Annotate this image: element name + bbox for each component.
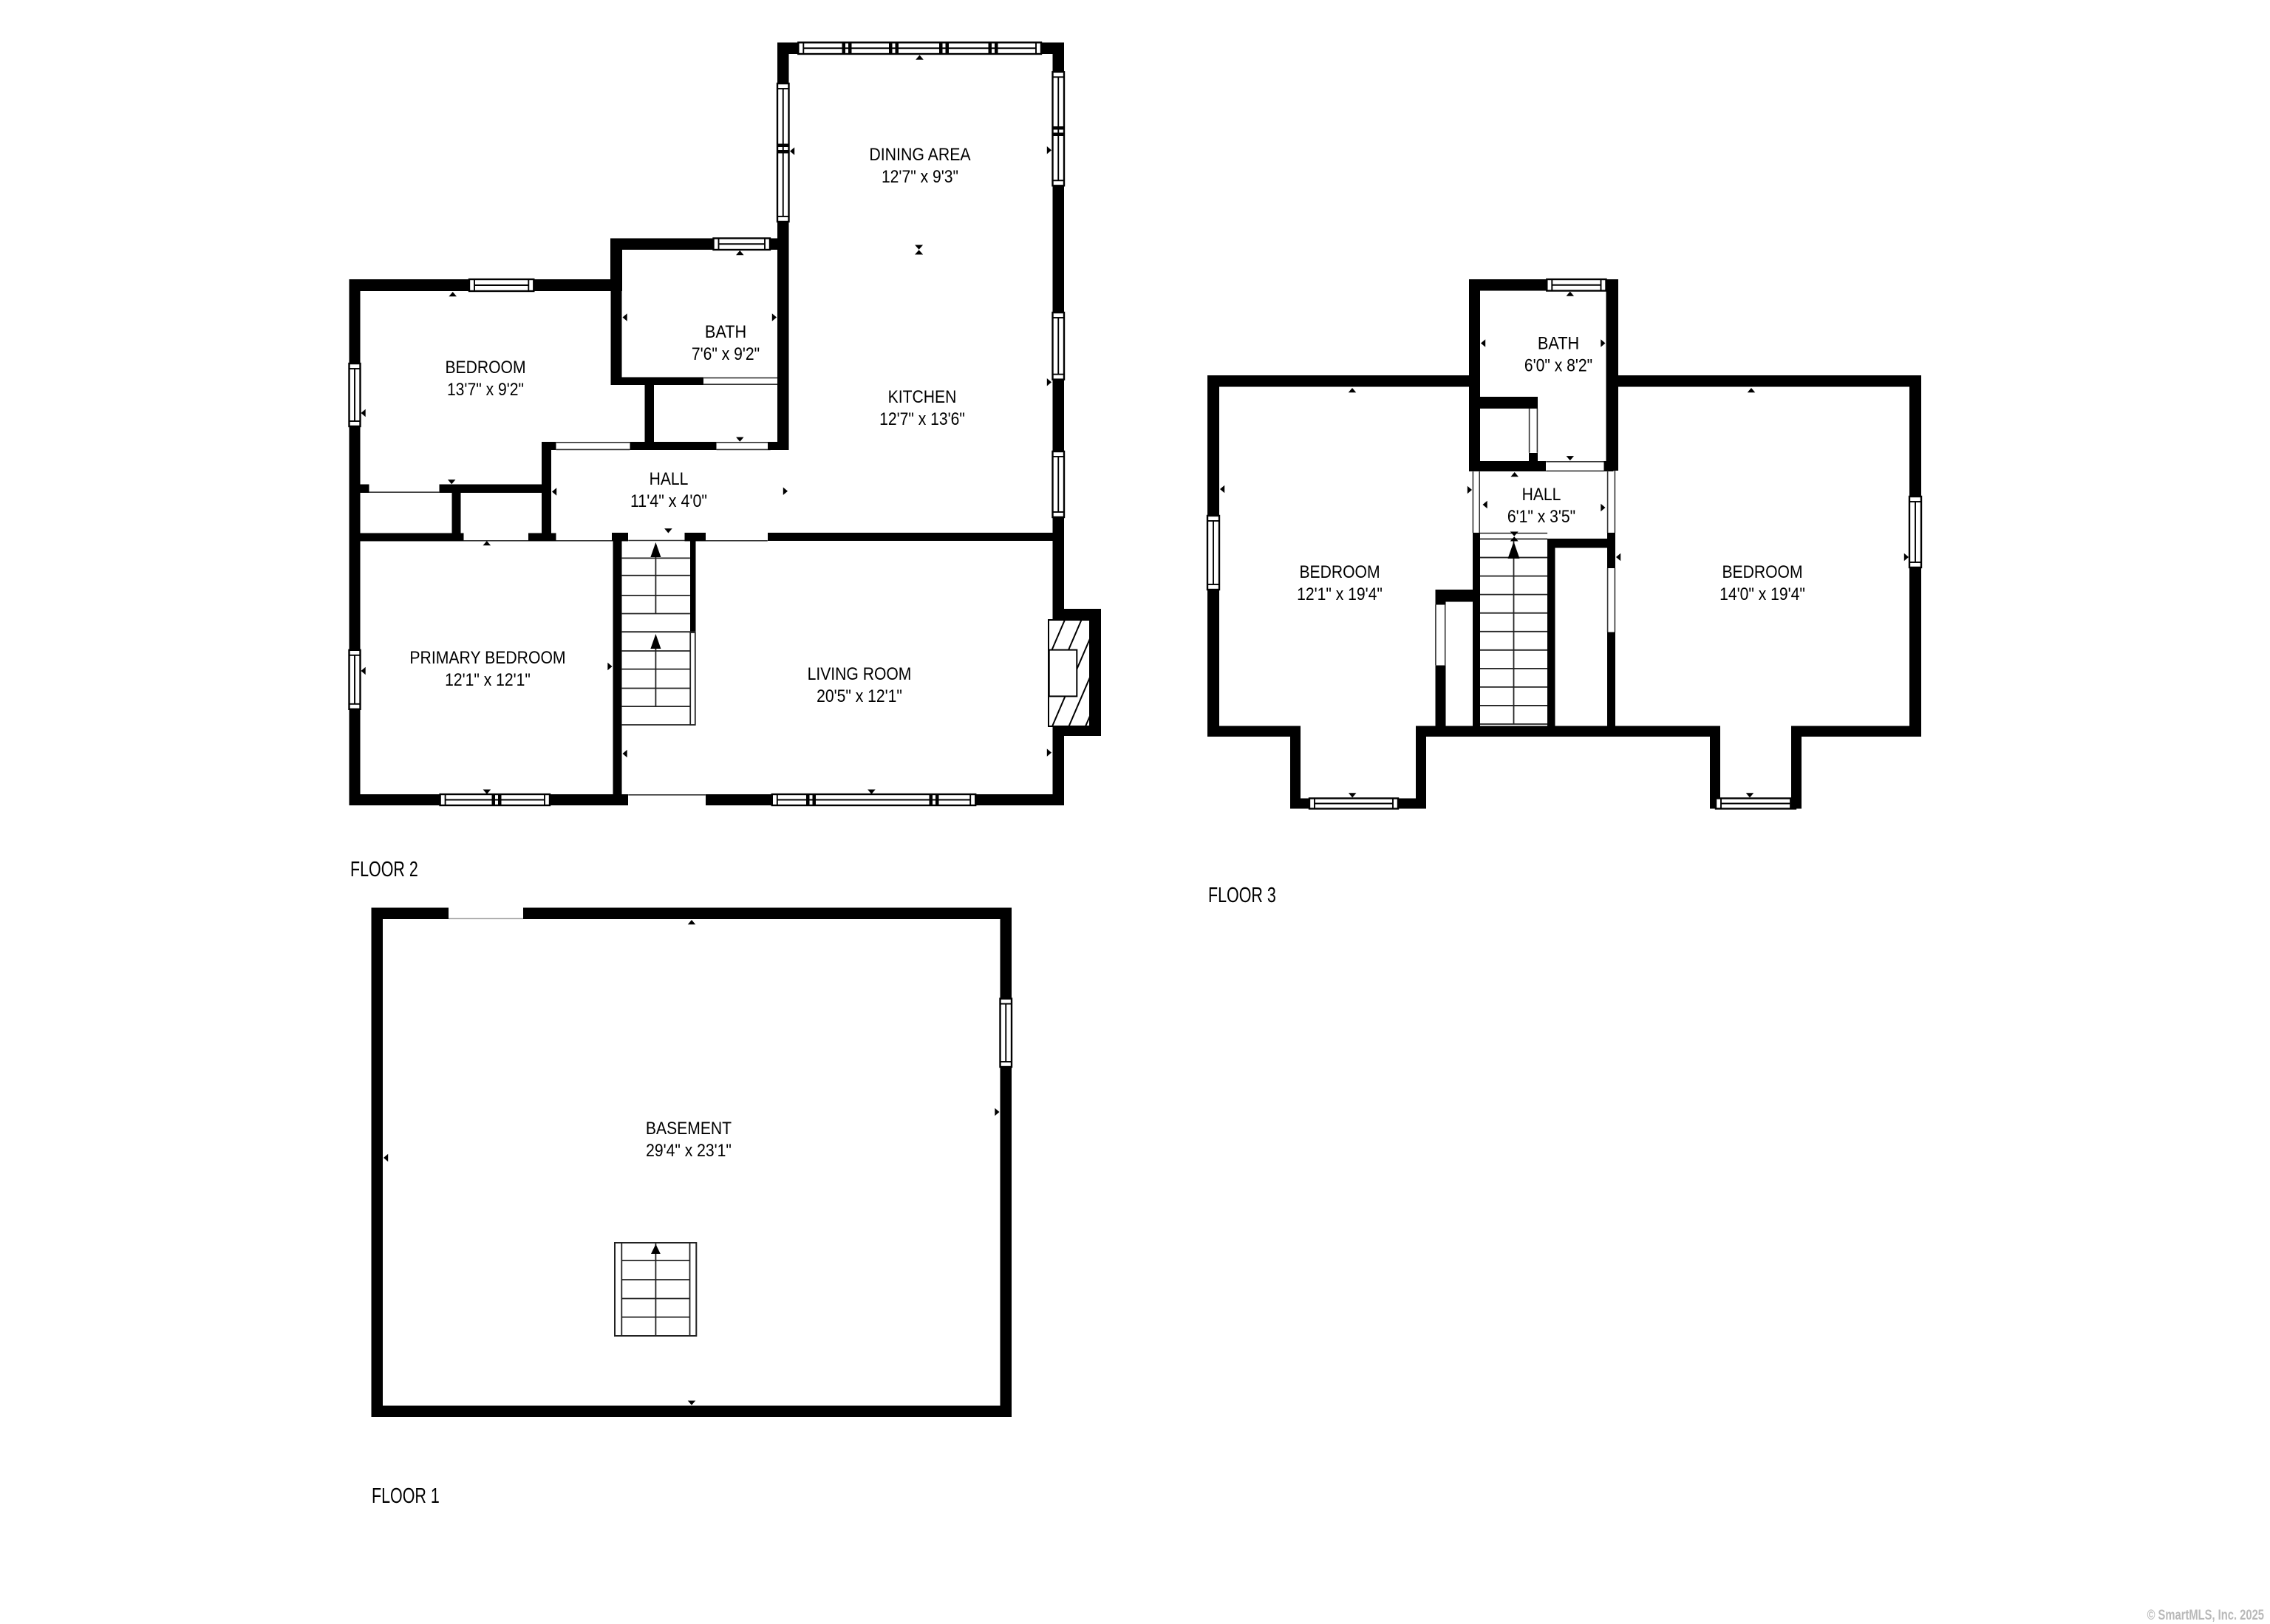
svg-text:12'1" x 12'1": 12'1" x 12'1" [445, 670, 531, 690]
svg-text:14'0" x 19'4": 14'0" x 19'4" [1719, 584, 1805, 604]
svg-text:11'4" x 4'0": 11'4" x 4'0" [630, 491, 707, 511]
svg-text:BASEMENT: BASEMENT [646, 1119, 732, 1139]
svg-text:7'6" x 9'2": 7'6" x 9'2" [692, 344, 760, 364]
svg-text:6'1" x 3'5": 6'1" x 3'5" [1507, 507, 1575, 527]
svg-text:BEDROOM: BEDROOM [1299, 562, 1380, 582]
svg-text:12'1" x 19'4": 12'1" x 19'4" [1297, 584, 1383, 604]
svg-text:KITCHEN: KITCHEN [888, 387, 957, 407]
svg-text:© SmartMLS, Inc. 2025: © SmartMLS, Inc. 2025 [2147, 1608, 2265, 1623]
svg-text:HALL: HALL [1522, 485, 1561, 505]
svg-text:13'7" x 9'2": 13'7" x 9'2" [447, 380, 524, 400]
svg-text:FLOOR 2: FLOOR 2 [350, 858, 418, 881]
svg-text:12'7" x 9'3": 12'7" x 9'3" [882, 167, 958, 187]
svg-text:BEDROOM: BEDROOM [445, 358, 525, 378]
svg-text:BATH: BATH [705, 322, 746, 342]
svg-text:DINING AREA: DINING AREA [869, 145, 970, 165]
svg-text:PRIMARY BEDROOM: PRIMARY BEDROOM [409, 648, 565, 668]
svg-text:29'4" x 23'1": 29'4" x 23'1" [646, 1141, 732, 1161]
svg-text:LIVING ROOM: LIVING ROOM [808, 664, 912, 684]
svg-text:FLOOR 1: FLOOR 1 [372, 1484, 440, 1508]
svg-text:FLOOR 3: FLOOR 3 [1208, 884, 1276, 907]
svg-text:BEDROOM: BEDROOM [1722, 562, 1802, 582]
svg-text:HALL: HALL [650, 469, 689, 489]
svg-text:20'5" x 12'1": 20'5" x 12'1" [817, 686, 902, 706]
svg-text:BATH: BATH [1538, 334, 1579, 354]
svg-text:12'7" x 13'6": 12'7" x 13'6" [879, 409, 965, 429]
svg-text:6'0" x 8'2": 6'0" x 8'2" [1524, 356, 1592, 376]
